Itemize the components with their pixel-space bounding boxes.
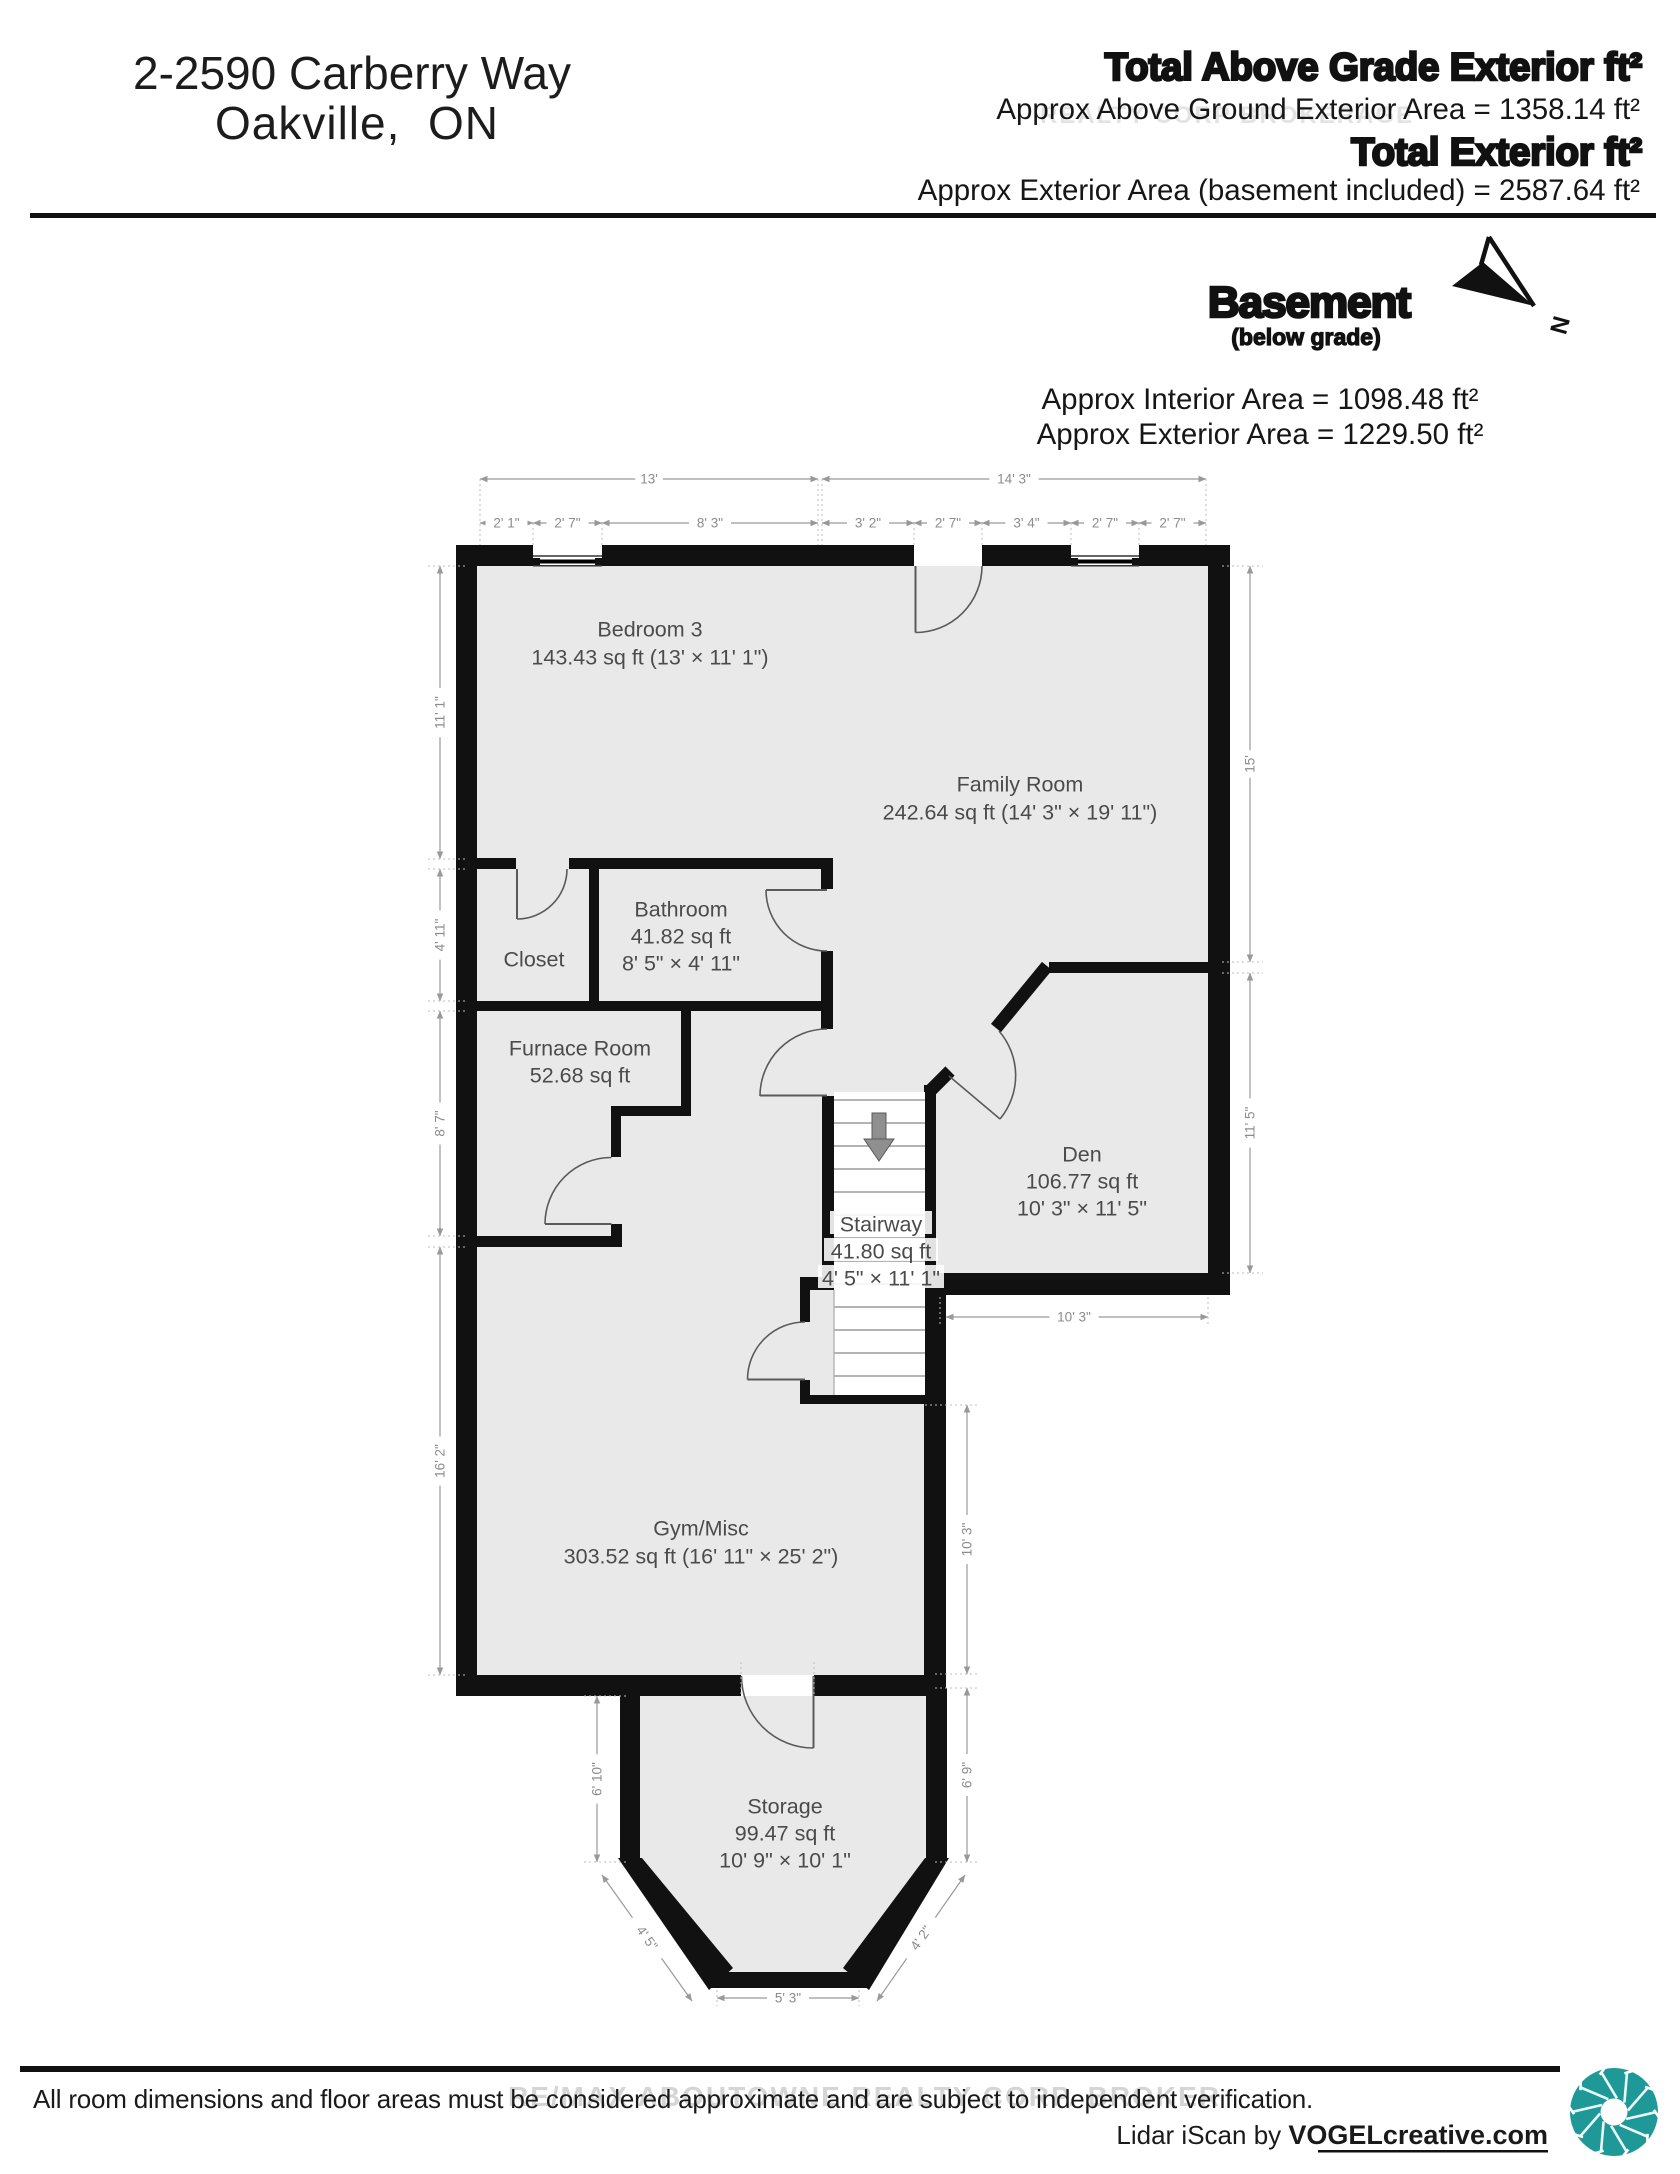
svg-text:10' 9" × 10' 1": 10' 9" × 10' 1" [719, 1849, 851, 1873]
svg-text:2-2590 Carberry Way: 2-2590 Carberry Way [133, 47, 571, 99]
svg-text:Family Room: Family Room [957, 773, 1084, 797]
svg-text:99.47 sq ft: 99.47 sq ft [735, 1822, 835, 1846]
svg-text:2' 7": 2' 7" [554, 516, 580, 531]
svg-text:Oakville, ON: Oakville, ON [215, 97, 499, 149]
svg-text:15': 15' [1243, 755, 1258, 773]
svg-text:Approx Above Ground Exterior A: Approx Above Ground Exterior Area = 1358… [996, 93, 1640, 126]
svg-text:Approx Interior Area = 1098.48: Approx Interior Area = 1098.48 ft² [1041, 383, 1478, 416]
svg-text:Basement: Basement [1208, 278, 1412, 327]
svg-text:106.77 sq ft: 106.77 sq ft [1026, 1170, 1138, 1194]
svg-text:242.64 sq ft (14' 3" × 19' 11": 242.64 sq ft (14' 3" × 19' 11") [883, 801, 1158, 825]
svg-text:41.80 sq ft: 41.80 sq ft [831, 1240, 931, 1264]
svg-text:3' 4": 3' 4" [1013, 516, 1039, 531]
svg-text:2' 7": 2' 7" [935, 516, 961, 531]
svg-text:2' 1": 2' 1" [493, 516, 519, 531]
svg-text:Bathroom: Bathroom [634, 898, 727, 922]
svg-text:8' 3": 8' 3" [697, 516, 723, 531]
svg-text:Approx Exterior Area = 1229.50: Approx Exterior Area = 1229.50 ft² [1037, 418, 1484, 451]
svg-text:Stairway: Stairway [840, 1213, 923, 1237]
svg-text:3' 2": 3' 2" [855, 516, 881, 531]
svg-text:10' 3" × 11' 5": 10' 3" × 11' 5" [1017, 1197, 1147, 1221]
svg-text:Gym/Misc: Gym/Misc [653, 1517, 749, 1541]
svg-text:Den: Den [1062, 1143, 1101, 1167]
svg-text:Storage: Storage [747, 1795, 822, 1819]
svg-text:303.52 sq ft (16' 11" × 25' 2": 303.52 sq ft (16' 11" × 25' 2") [564, 1545, 839, 1569]
svg-text:(below grade): (below grade) [1231, 324, 1381, 350]
svg-text:10' 3": 10' 3" [960, 1522, 975, 1556]
svg-text:Bedroom 3: Bedroom 3 [597, 618, 702, 642]
svg-text:14' 3": 14' 3" [997, 472, 1031, 487]
svg-text:8' 7": 8' 7" [433, 1110, 448, 1136]
svg-text:Furnace Room: Furnace Room [509, 1037, 651, 1061]
svg-text:13': 13' [640, 472, 658, 487]
svg-text:Total Exterior ft²: Total Exterior ft² [1351, 131, 1642, 174]
svg-text:8' 5" × 4' 11": 8' 5" × 4' 11" [622, 952, 740, 976]
svg-text:16' 2": 16' 2" [433, 1444, 448, 1478]
svg-text:52.68 sq ft: 52.68 sq ft [530, 1064, 630, 1088]
svg-text:Total Above Grade Exterior ft²: Total Above Grade Exterior ft² [1105, 46, 1643, 89]
svg-text:2' 7": 2' 7" [1159, 516, 1185, 531]
svg-text:10' 3": 10' 3" [1057, 1310, 1091, 1325]
svg-text:4' 11": 4' 11" [433, 918, 448, 951]
svg-text:11' 5": 11' 5" [1243, 1106, 1258, 1139]
svg-text:4' 5" × 11' 1": 4' 5" × 11' 1" [822, 1267, 940, 1291]
svg-text:2' 7": 2' 7" [1092, 516, 1118, 531]
svg-text:Approx Exterior Area (basement: Approx Exterior Area (basement included)… [918, 174, 1641, 207]
svg-text:6' 10": 6' 10" [590, 1762, 605, 1796]
svg-text:5' 3": 5' 3" [775, 1991, 801, 2006]
svg-text:143.43 sq ft (13' × 11' 1"): 143.43 sq ft (13' × 11' 1") [531, 646, 768, 670]
svg-text:Closet: Closet [504, 948, 565, 972]
svg-text:41.82 sq ft: 41.82 sq ft [631, 925, 731, 949]
svg-text:All room dimensions and floor: All room dimensions and floor areas must… [33, 2084, 1313, 2114]
svg-text:11' 1": 11' 1" [433, 696, 448, 729]
svg-text:6' 9": 6' 9" [960, 1762, 975, 1788]
svg-text:Lidar iScan by VOGELcreative.c: Lidar iScan by VOGELcreative.com [1116, 2120, 1548, 2150]
